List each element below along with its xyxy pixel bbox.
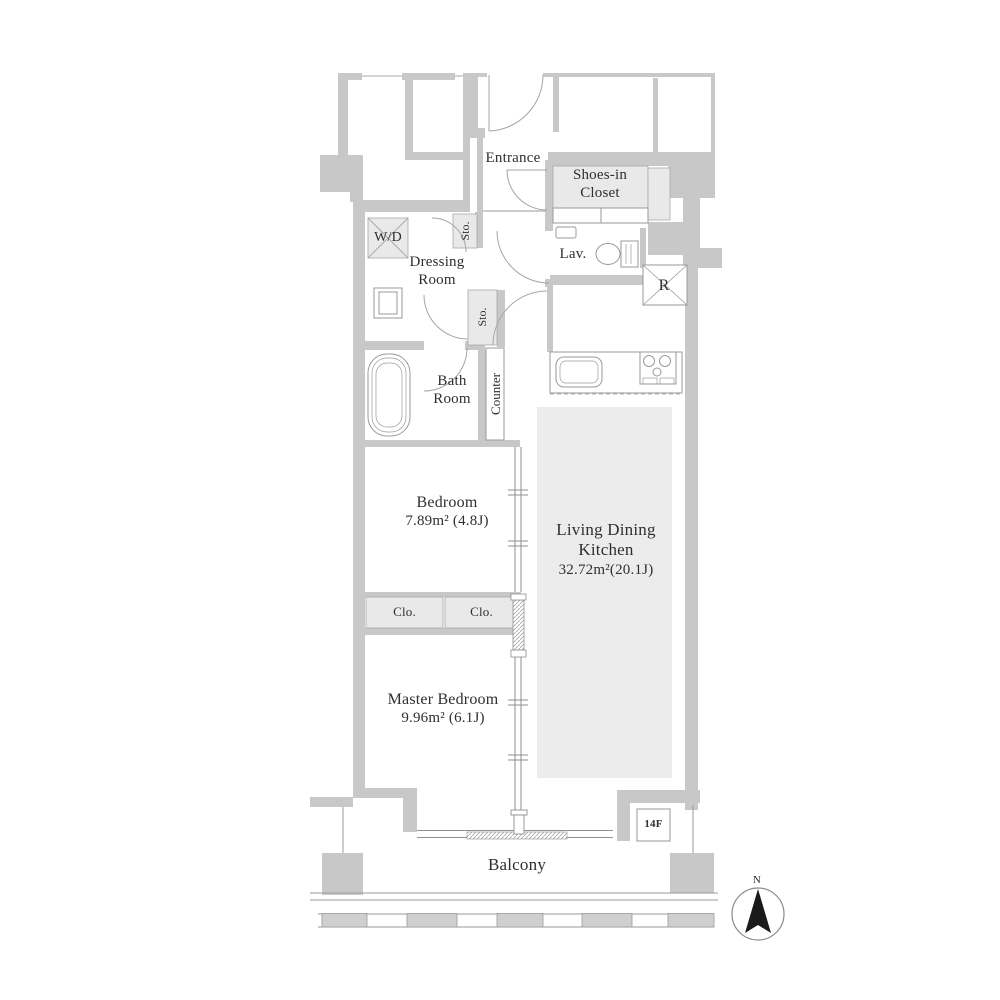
- compass-icon: [732, 888, 784, 940]
- storage-upper-label: Sto.: [458, 201, 472, 261]
- master-bedroom-name: Master Bedroom: [363, 690, 523, 709]
- shoe-shelf-left: [553, 208, 601, 223]
- ldk-label: Living Dining Kitchen 32.72m²(20.1J): [526, 520, 686, 579]
- bath-room-line2: Room: [402, 390, 502, 408]
- hall-door-arc: [507, 170, 547, 210]
- vanity-icon: [374, 288, 402, 318]
- washer-dryer-label: W/D: [368, 230, 408, 247]
- balcony-label: Balcony: [447, 855, 587, 875]
- shoes-in-closet-line1: Shoes-in: [550, 166, 650, 184]
- bath-room-label: Bath Room: [402, 372, 502, 408]
- railing: [318, 914, 714, 928]
- entrance-label: Entrance: [463, 149, 563, 167]
- toilet-icon: [596, 241, 638, 267]
- shoes-in-closet-line2: Closet: [550, 184, 650, 202]
- storage-door-arc: [424, 295, 468, 339]
- shoes-in-closet-side: [648, 168, 670, 220]
- dressing-room-line1: Dressing: [387, 253, 487, 271]
- dressing-room-line2: Room: [387, 271, 487, 289]
- ldk-rug: [537, 407, 672, 778]
- ldk-area: 32.72m²(20.1J): [526, 561, 686, 579]
- bedroom-area: 7.89m² (4.8J): [367, 512, 527, 530]
- counter-label: Counter: [488, 359, 502, 429]
- floor-marker-label: 14F: [637, 818, 670, 831]
- compass-north-label: N: [747, 874, 767, 887]
- bath-room-line1: Bath: [402, 372, 502, 390]
- closet-right-label: Clo.: [445, 604, 518, 620]
- closet-left-label: Clo.: [366, 604, 443, 620]
- master-bedroom-area: 9.96m² (6.1J): [363, 709, 523, 727]
- lav-sink-icon: [556, 227, 576, 238]
- bedroom-label: Bedroom 7.89m² (4.8J): [367, 493, 527, 530]
- storage-lower-label: Sto.: [475, 287, 489, 347]
- ldk-line1: Living Dining: [526, 520, 686, 540]
- refrigerator-space-label: R: [644, 276, 684, 295]
- dressing-room-label: Dressing Room: [387, 253, 487, 289]
- entrance-door-arc: [489, 75, 543, 131]
- floor-plan: Entrance Shoes-in Closet W/D Sto. Dressi…: [0, 0, 1000, 1000]
- bedroom-name: Bedroom: [367, 493, 527, 512]
- lavatory-door-arc: [497, 231, 549, 283]
- shoes-in-closet-label: Shoes-in Closet: [550, 166, 650, 202]
- lavatory-label: Lav.: [553, 245, 593, 263]
- ldk-line2: Kitchen: [526, 540, 686, 560]
- shoe-shelf-right: [601, 208, 648, 223]
- master-bedroom-label: Master Bedroom 9.96m² (6.1J): [363, 690, 523, 727]
